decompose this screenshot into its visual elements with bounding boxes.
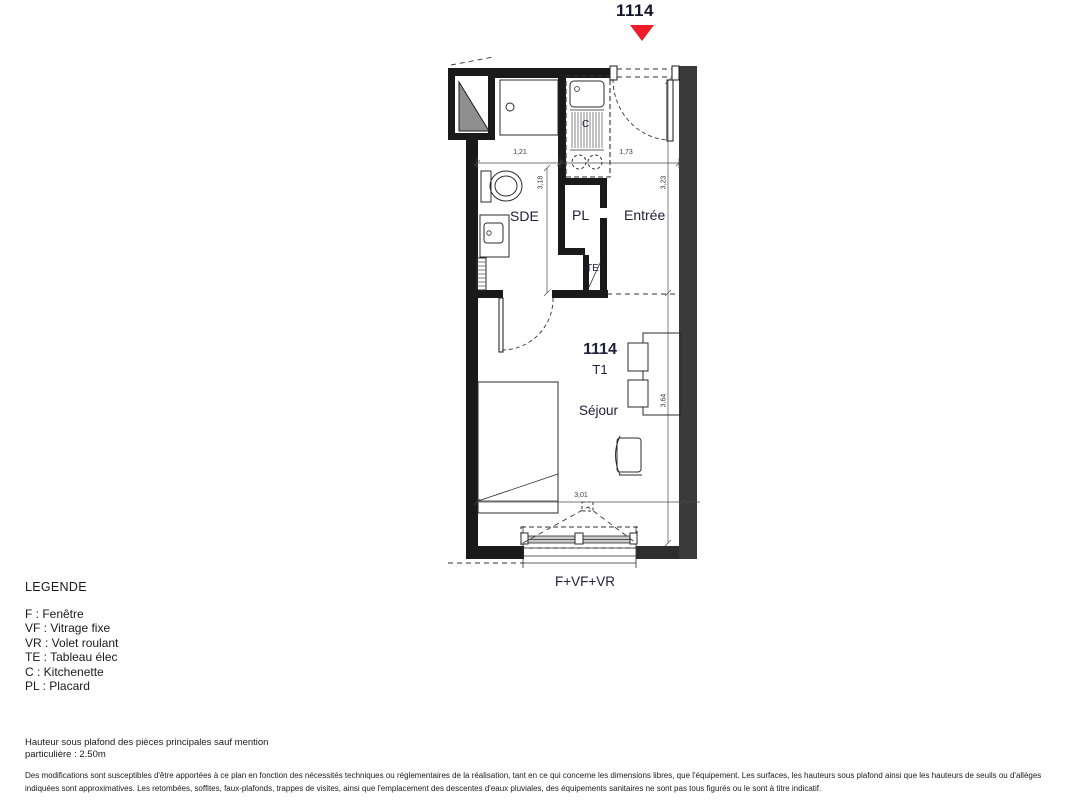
shower: [500, 80, 558, 135]
legend-item-te: TE : Tableau élec: [25, 650, 118, 664]
walls: [448, 66, 697, 559]
room-label-te: TE: [586, 263, 599, 274]
legend-title: LEGENDE: [25, 580, 118, 594]
entry-door: [613, 69, 673, 141]
sde-door: [499, 298, 553, 352]
room-label-placard: PL: [572, 207, 589, 223]
window: [521, 502, 637, 568]
toilet: [481, 171, 522, 202]
plan-unit-type: T1: [576, 362, 624, 377]
legend-item-vr: VR : Volet roulant: [25, 636, 118, 650]
dim-top-right: 1,73: [611, 149, 641, 156]
ceiling-height-note: Hauteur sous plafond des pièces principa…: [25, 737, 268, 761]
disclaimer-text: Des modifications sont susceptibles d'êt…: [25, 769, 1060, 795]
legend-item-c: C : Kitchenette: [25, 665, 118, 679]
dim-bottom: 3,01: [566, 492, 596, 499]
desk-chairs: [628, 343, 648, 407]
dim-right-upper: 3,23: [661, 170, 668, 196]
legend-list: F : Fenêtre VF : Vitrage fixe VR : Volet…: [25, 607, 118, 693]
window-type-label: F+VF+VR: [530, 574, 640, 589]
radiator: [477, 258, 486, 290]
room-label-kitchenette: C: [582, 119, 589, 130]
chair: [616, 436, 643, 475]
dim-right-lower: 3,64: [661, 388, 668, 414]
legend-item-f: F : Fenêtre: [25, 607, 118, 621]
room-label-sde: SDE: [510, 208, 539, 224]
legend: LEGENDE F : Fenêtre VF : Vitrage fixe VR…: [25, 580, 118, 693]
floor-plan-drawing: [440, 0, 720, 600]
room-label-entree: Entrée: [624, 207, 665, 223]
dim-top-left: 1,21: [505, 149, 535, 156]
dim-left-vert: 3,18: [538, 170, 545, 196]
floor-plan-page: 1114: [0, 0, 1080, 800]
plan-unit-number: 1114: [576, 341, 624, 359]
washbasin: [480, 215, 509, 257]
legend-item-pl: PL : Placard: [25, 679, 118, 693]
bed: [478, 382, 558, 513]
legend-item-vf: VF : Vitrage fixe: [25, 621, 118, 635]
room-label-sejour: Séjour: [579, 403, 618, 418]
